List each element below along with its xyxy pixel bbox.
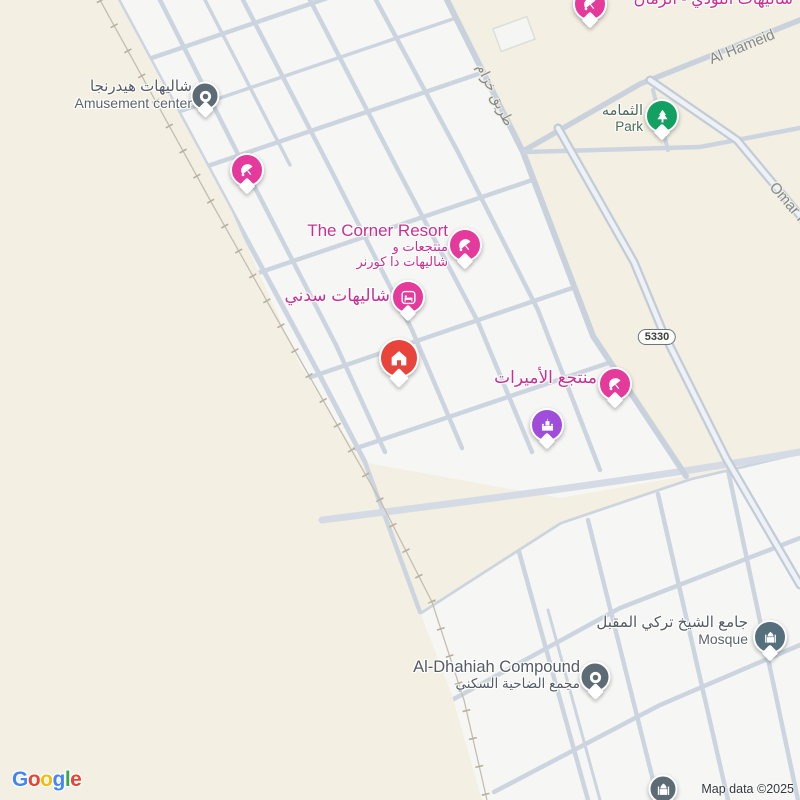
- beach-resort-marker[interactable]: [230, 153, 264, 187]
- poi-category: Amusement center: [75, 96, 193, 112]
- dot-icon: [585, 667, 605, 687]
- poi-label-dhahiah-compound[interactable]: Al-Dhahiah Compound مجمع الضاحية السكني: [413, 658, 580, 692]
- tree-icon: [653, 107, 672, 126]
- selected-property-marker[interactable]: [379, 338, 419, 378]
- corner-resort-marker[interactable]: [448, 228, 482, 262]
- poi-title: Al-Dhahiah Compound: [413, 658, 580, 676]
- attraction-marker[interactable]: [530, 408, 564, 442]
- dhahiah-compound-marker[interactable]: [580, 662, 611, 693]
- poi-category: Mosque: [596, 632, 748, 648]
- beach-umbrella-icon: [238, 161, 257, 180]
- beach-umbrella-icon: [606, 375, 625, 394]
- beach-umbrella-icon: [581, 0, 600, 14]
- poi-title-arabic: جامع الشيخ تركي المقبل: [596, 615, 748, 632]
- route-badge-5330: 5330: [638, 329, 676, 345]
- poi-subtitle-arabic: شاليهات دا كورنر: [307, 255, 448, 270]
- poi-label-nudi-chalets[interactable]: شاليهات النودي - الرمان: [634, 0, 793, 9]
- hydrangea-chalets-marker[interactable]: [191, 82, 220, 111]
- google-map-canvas[interactable]: طريق خزام Al Hameid Omar Ib 5330 شاليهات…: [0, 0, 800, 800]
- princesses-resort-marker[interactable]: [598, 367, 632, 401]
- sheikh-turki-mosque-marker[interactable]: [753, 620, 787, 654]
- poi-label-hydrangea-chalets[interactable]: شاليهات هيدرنجا Amusement center: [75, 79, 193, 111]
- poi-title-arabic: شاليهات سدني: [284, 286, 390, 305]
- poi-category: Park: [602, 119, 643, 134]
- poi-label-thumamah-park[interactable]: الثمامه Park: [602, 103, 643, 134]
- poi-label-corner-resort[interactable]: The Corner Resort منتجعات و شاليهات دا ك…: [307, 221, 448, 269]
- poi-title-arabic: الثمامه: [602, 103, 643, 119]
- poi-subtitle-arabic: منتجعات و: [307, 240, 448, 255]
- poi-title: The Corner Resort: [307, 221, 448, 240]
- mosque-icon: [761, 628, 780, 647]
- dot-icon: [195, 86, 215, 106]
- map-base-layer: [0, 0, 800, 800]
- bed-icon: [399, 288, 418, 307]
- poi-title-arabic: شاليهات النودي - الرمان: [634, 0, 793, 9]
- beach-umbrella-icon: [456, 236, 475, 255]
- poi-subtitle-arabic: مجمع الضاحية السكني: [413, 676, 580, 691]
- map-data-copyright: Map data ©2025: [701, 782, 794, 796]
- palace-icon: [538, 416, 557, 435]
- poi-label-sheikh-turki-mosque[interactable]: جامع الشيخ تركي المقبل Mosque: [596, 615, 748, 647]
- mosque-icon: [653, 779, 673, 799]
- poi-title-arabic: شاليهات هيدرنجا: [75, 79, 193, 96]
- poi-label-sydney-chalets[interactable]: شاليهات سدني: [284, 286, 390, 305]
- house-icon: [388, 347, 410, 369]
- poi-label-princesses-resort[interactable]: منتجع الأميرات: [494, 368, 597, 387]
- thumamah-park-marker[interactable]: [645, 99, 679, 133]
- sydney-chalets-marker[interactable]: [391, 280, 425, 314]
- google-logo[interactable]: Google: [12, 768, 81, 792]
- poi-title-arabic: منتجع الأميرات: [494, 368, 597, 387]
- edge-mosque-marker[interactable]: [649, 775, 678, 800]
